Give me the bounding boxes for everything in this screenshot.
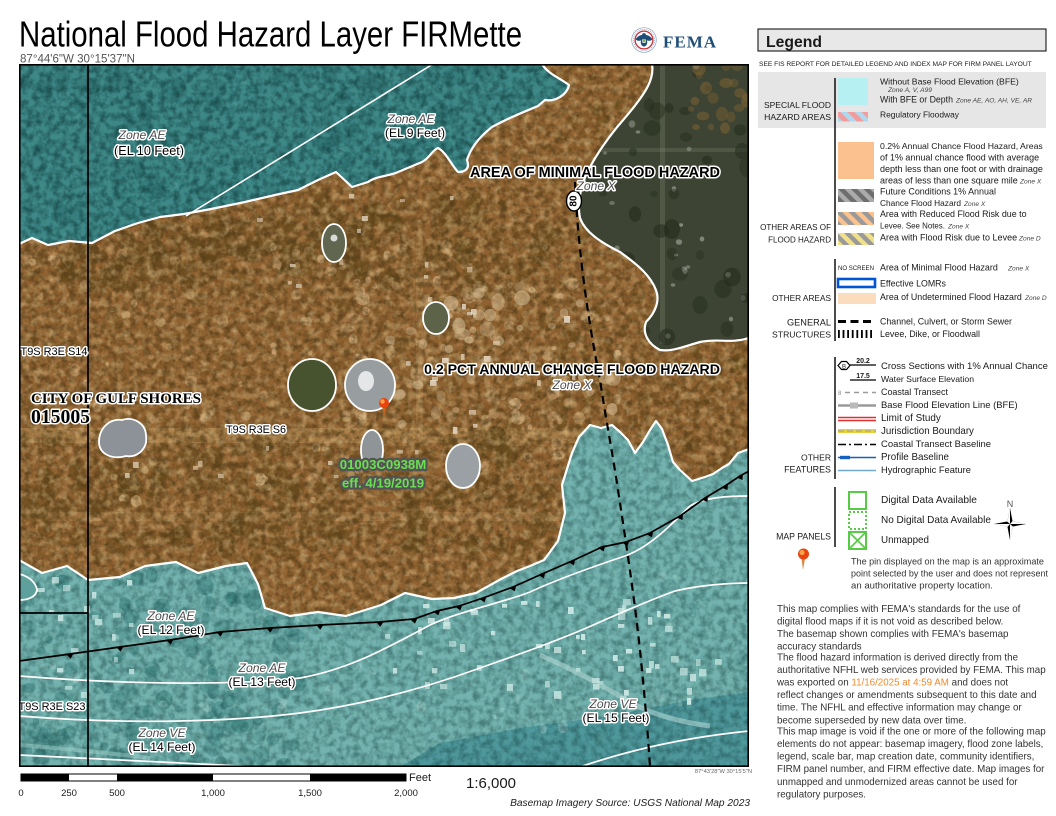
svg-text:0: 0: [18, 788, 23, 799]
svg-text:1,500: 1,500: [298, 788, 322, 799]
svg-text:Basemap Imagery Source: USGS N: Basemap Imagery Source: USGS National Ma…: [510, 798, 750, 809]
svg-text:500: 500: [109, 788, 125, 799]
svg-text:2,000: 2,000: [394, 788, 418, 799]
svg-text:1:6,000: 1:6,000: [466, 775, 516, 792]
svg-text:250: 250: [61, 788, 77, 799]
svg-text:Feet: Feet: [409, 772, 431, 784]
svg-text:1,000: 1,000: [201, 788, 225, 799]
svg-text:87°43'28"W 30°15'5"N: 87°43'28"W 30°15'5"N: [695, 769, 752, 775]
